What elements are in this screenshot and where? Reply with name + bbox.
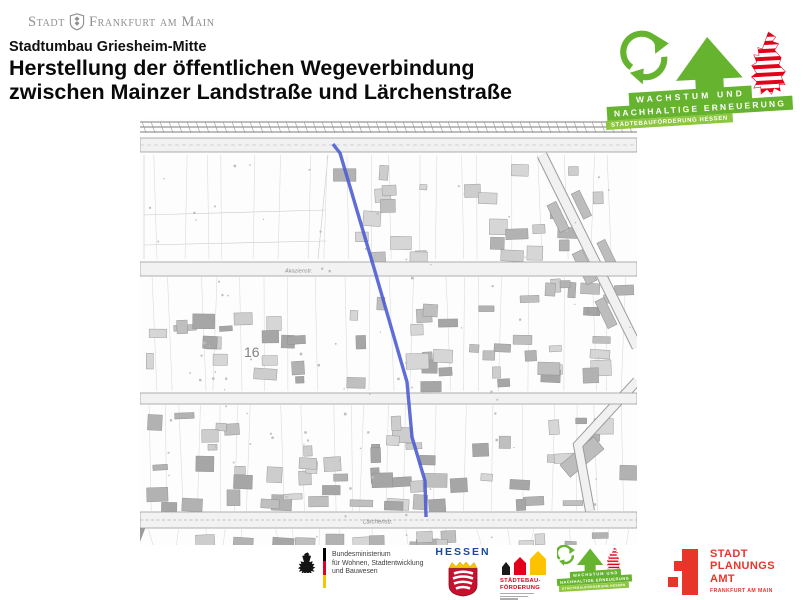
parcel-number-label: 16 — [244, 344, 260, 360]
city-logo-word-stadt: Stadt — [28, 14, 65, 31]
street-label-akazienstr: Akazienstr. — [284, 269, 312, 275]
bmwsb-line3: und Bauwesen — [332, 568, 423, 577]
cadastral-map: 16 Akazienstr. Lärchenstr. — [140, 119, 637, 545]
german-flag-bar — [323, 548, 326, 588]
project-subtitle: Stadtumbau Griesheim-Mitte — [9, 39, 206, 55]
spa-subline: FRANKFURT AM MAIN — [710, 588, 775, 594]
frankfurt-city-logo: Stadt Frankfurt am Main — [28, 13, 215, 31]
three-houses-icon — [500, 549, 546, 575]
poster: Stadt Frankfurt am Main Stadtumbau Gries… — [0, 0, 803, 600]
bmwsb-logo: Bundesministerium für Wohnen, Stadtentwi… — [297, 548, 423, 588]
bmwsb-line1: Bundesministerium — [332, 551, 423, 560]
stadtplanungsamt-icon — [668, 549, 702, 595]
frankfurt-crest-icon — [69, 13, 85, 31]
spa-line3: AMT — [710, 573, 775, 585]
spa-line1: STADT — [710, 548, 775, 560]
spa-line2: PLANUNGS — [710, 560, 775, 572]
sbf-line1: STÄDTEBAU- — [500, 578, 550, 585]
sbf-smallprint — [500, 593, 550, 600]
stadtplanungsamt-logo: STADT PLANUNGS AMT FRANKFURT AM MAIN — [668, 549, 775, 595]
hessen-logo: HESSEN — [431, 546, 495, 597]
hessen-label: HESSEN — [431, 546, 495, 558]
bmwsb-label: Bundesministerium für Wohnen, Stadtentwi… — [332, 551, 423, 577]
street-label-laerchenstr: Lärchenstr. — [363, 520, 393, 526]
cadastral-map-graphic: 16 Akazienstr. Lärchenstr. — [140, 119, 637, 545]
hessen-coat-of-arms-icon — [447, 561, 479, 597]
bmwsb-line2: für Wohnen, Stadtentwicklung — [332, 560, 423, 569]
page-title-line1: Herstellung der öffentlichen Wegeverbind… — [9, 56, 474, 81]
federal-eagle-icon — [297, 551, 318, 573]
staedtebaufoerderung-logo: STÄDTEBAU- FÖRDERUNG — [500, 549, 550, 600]
city-logo-word-frankfurt: Frankfurt am Main — [89, 14, 215, 31]
page-title-line2: zwischen Mainzer Landstraße und Lärchens… — [9, 80, 512, 105]
sbf-line2: FÖRDERUNG — [500, 585, 550, 592]
